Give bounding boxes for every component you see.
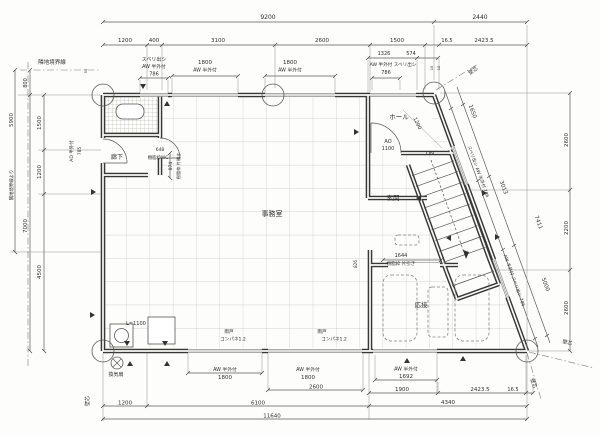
label-dim-6100-b: 6100 (251, 401, 265, 407)
label-win-aw-b2: AW 半外付 (296, 366, 320, 373)
label-dim-800-left: 800 (23, 78, 29, 88)
sink-cabinet (110, 324, 133, 347)
drawing-sheet: architectural floor plan (0, 0, 600, 435)
label-dim-786-tr: 786 (381, 70, 391, 76)
label-boundary-label: 隣地境界線 (38, 58, 66, 66)
label-dim-2440: 2440 (472, 14, 487, 21)
label-dim-2423-5-top: 2423.5 (474, 38, 494, 44)
label-dim-1644: 1644 (395, 253, 408, 259)
label-dim-5000: 5000 (540, 277, 551, 293)
label-door-sliding-label: 樹脂枠 片引き (387, 260, 415, 267)
label-wall-center-bl: 壁芯 (84, 396, 91, 406)
label-dim-1800-b1: 1800 (218, 375, 232, 381)
label-shutter-b2: 雨戸 (317, 329, 327, 335)
label-room-entrance: 玄関 (387, 193, 400, 202)
label-door-wc-label: 樹脂枠WC (148, 154, 169, 161)
label-dim-5900: 5900 (9, 113, 15, 127)
label-note-10b: 10 (437, 66, 441, 70)
label-dim-2423-5-b: 2423.5 (470, 387, 490, 393)
label-win-aw-b1: AW 半外付 (213, 366, 237, 373)
label-dim-7000-left: 7000 (23, 219, 29, 233)
floor-plan-canvas: architectural floor plan (0, 0, 600, 435)
label-dim-785: 785 (77, 147, 83, 156)
label-dim-1800-b2: 1800 (301, 375, 315, 381)
label-counter-length: L=1100 (126, 321, 146, 327)
label-dim-16-5-b: 16.5 (507, 387, 518, 393)
label-dim-1326: 1326 (378, 51, 391, 57)
label-door-ad-label: AD 半外付 (68, 140, 75, 162)
label-dim-1900-b: 1900 (395, 387, 409, 393)
label-win-aw-b3: AW 半外付 (394, 366, 418, 373)
label-shutter-b1: 雨戸 (224, 329, 234, 335)
label-room-reception: 応接 (415, 300, 429, 309)
label-dim-1500-top: 1500 (390, 38, 404, 44)
label-door-ao: AO (384, 139, 391, 145)
label-dim-648: 648 (156, 147, 165, 153)
label-door-hinged-label: 樹脂枠 片開き (175, 153, 182, 179)
label-win-aw-t2: AW 半外付 (278, 67, 302, 74)
label-dim-400-top: 400 (149, 38, 160, 44)
label-dim-4340-b: 4340 (441, 400, 455, 406)
label-dim-786-tl: 786 (149, 72, 159, 78)
label-dim-5900-note: 隣地境界線より (8, 170, 15, 201)
label-dim-2600-r2: 2600 (564, 301, 570, 315)
label-dim-11640: 11640 (263, 414, 281, 420)
label-dim-1800-t2: 1800 (283, 60, 297, 66)
label-dim-3100-top: 3100 (211, 38, 225, 44)
label-dim-7411: 7411 (533, 215, 543, 230)
label-stair-dn: DN (426, 151, 434, 157)
label-note-50: 50 (84, 69, 88, 73)
label-wall-center-br2: 壁芯 (528, 378, 538, 390)
label-dim-1200-left: 1200 (37, 165, 43, 179)
label-dim-16-5-top: 16.5 (441, 38, 452, 44)
label-note-10a: 10 (430, 66, 434, 70)
label-dim-1200-b: 1200 (118, 401, 132, 407)
label-shutter-b1-panel: コンパネ1.2 (220, 337, 246, 343)
label-win-sliding-tl: スベリ出シ (142, 56, 167, 63)
label-dim-4500-left: 4500 (37, 265, 43, 279)
label-dim-3013: 3013 (498, 180, 509, 196)
label-wall-center-br1: 壁芯 (562, 338, 573, 347)
label-dim-874: 874 (168, 162, 174, 171)
label-room-corridor: 廊下 (111, 153, 123, 161)
label-win-aw-tl: AW 半外付 (142, 63, 166, 70)
label-room-office: 事務室 (262, 209, 283, 218)
label-dim-826: 826 (353, 260, 358, 268)
label-dim-2200-r: 2200 (564, 221, 570, 235)
label-win-aw-t1: AW 半外付 (193, 67, 217, 74)
label-dim-1100: 1100 (382, 146, 395, 152)
label-dim-574: 574 (406, 51, 416, 57)
label-dim-1800-t1: 1800 (198, 60, 212, 66)
label-dim-2600-top: 2600 (315, 38, 329, 44)
label-dim-1692: 1692 (399, 374, 413, 380)
label-dim-2600-b: 2600 (309, 385, 323, 391)
label-room-hall: ホール (389, 113, 409, 121)
label-dim-9200: 9200 (260, 14, 275, 21)
label-win-aw-tr: AW 半外付 スベリ出シ (370, 61, 417, 68)
bathtub (116, 104, 144, 119)
label-wall-center-tr: 壁芯 (467, 65, 479, 76)
label-dim-2600-r1: 2600 (564, 133, 570, 147)
label-dim-1200-top: 1200 (118, 38, 132, 44)
counter (148, 317, 175, 344)
vent-fan-cross (113, 359, 121, 367)
label-dim-1500-left: 1500 (37, 116, 43, 130)
label-vent-fan-label: 換気扇 (108, 371, 123, 378)
label-shutter-b2-panel: コンパネ1.2 (321, 337, 347, 343)
